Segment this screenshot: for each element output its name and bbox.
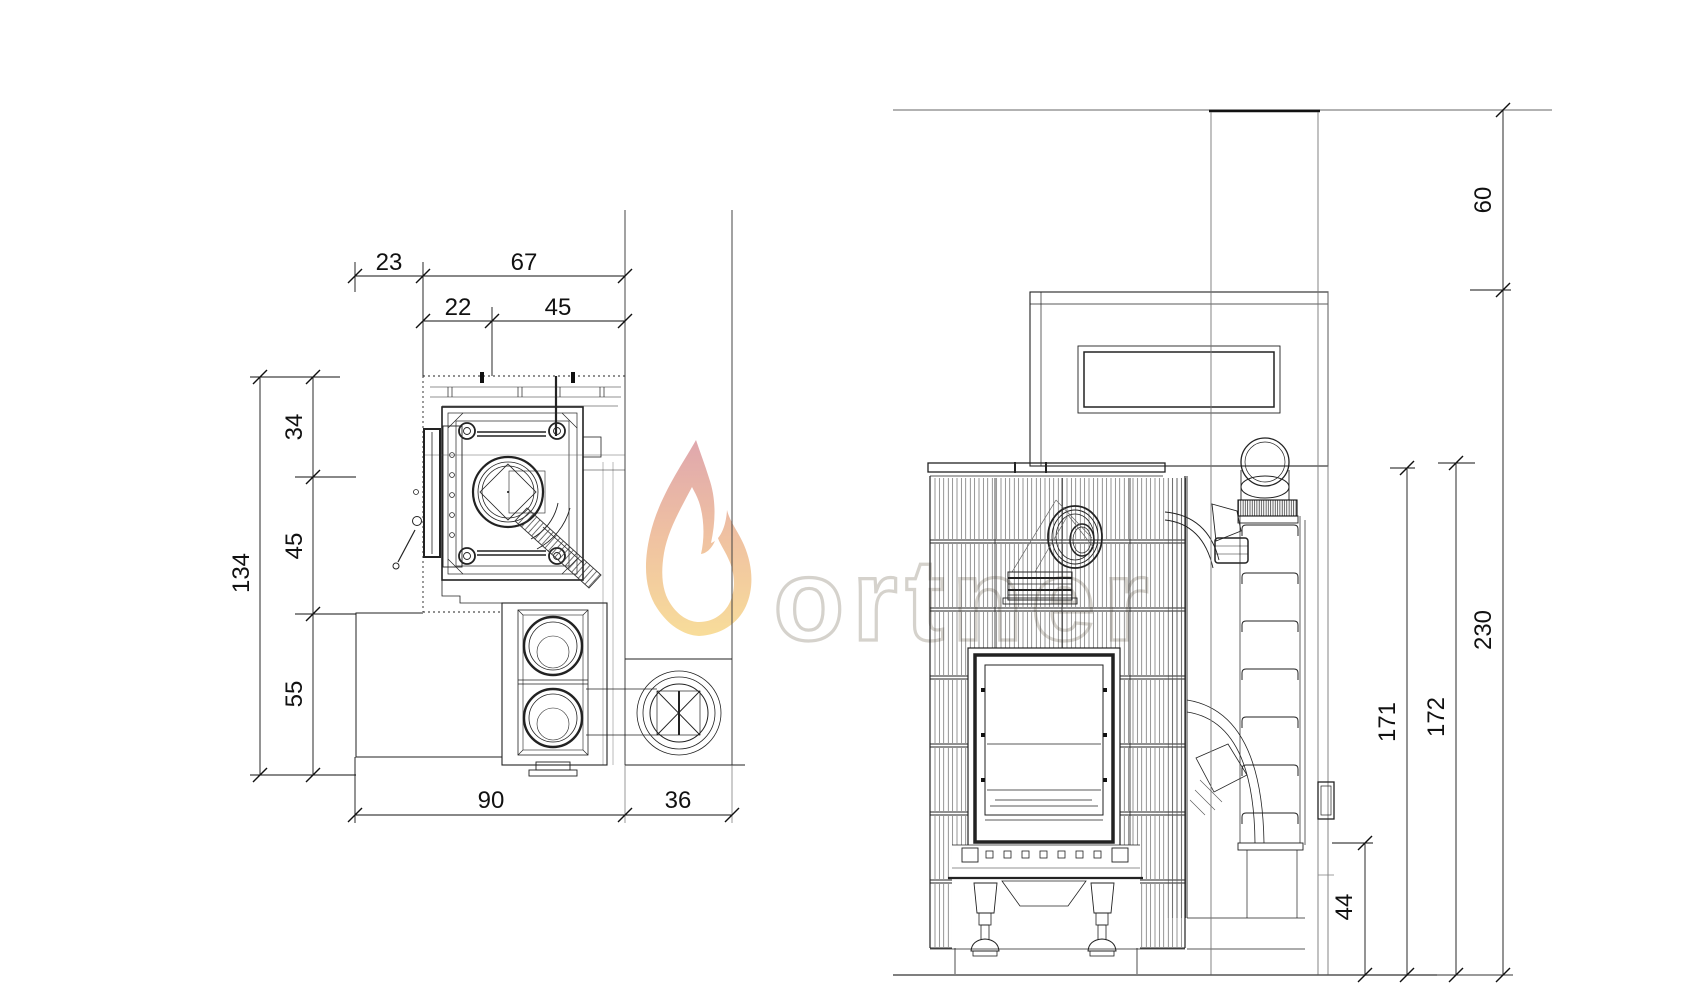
firebox-door: [968, 648, 1120, 847]
stove-top-cap: [928, 462, 1165, 476]
dim-label-45-left: 45: [281, 533, 308, 560]
bench-outline-plan: [356, 613, 502, 757]
wall-stub: [1318, 782, 1334, 875]
dim-label-36: 36: [665, 787, 692, 814]
lower-duct-box-plan: [502, 603, 607, 776]
damper-fan: [515, 503, 601, 588]
pipe-circle-bottom: [524, 689, 582, 747]
cad-drawing-canvas: ortner: [0, 0, 1695, 1000]
wall-sleeve-hatch: [1238, 500, 1297, 516]
elevation-dimensions: 60 230 172 171 44: [1331, 103, 1511, 982]
flue-duct: [1238, 438, 1297, 516]
door-glass: [985, 665, 1103, 815]
pipe-circle-top: [524, 617, 582, 675]
cleanout-port: [1215, 538, 1248, 563]
dim-label-172: 172: [1423, 697, 1450, 737]
dim-label-55: 55: [281, 681, 308, 708]
dim-label-90: 90: [478, 787, 505, 814]
door-handle-icon: [413, 517, 422, 526]
heat-accumulator: [1165, 476, 1305, 949]
dim-label-230: 230: [1470, 610, 1497, 650]
chimney-shaft: [1211, 112, 1328, 975]
dim-label-171: 171: [1374, 702, 1401, 742]
dim-label-60: 60: [1470, 187, 1497, 214]
dim-label-22: 22: [445, 294, 472, 321]
dim-label-134: 134: [228, 553, 255, 593]
dim-label-23: 23: [376, 249, 403, 276]
dim-label-45-top: 45: [545, 294, 572, 321]
door-hinge-icon: [414, 490, 419, 495]
stove-technical-drawing: ortner: [0, 0, 1695, 1000]
vent-grille: [1078, 346, 1280, 413]
chimney-flue-symbol: [586, 671, 721, 755]
dim-label-44: 44: [1331, 894, 1358, 921]
dim-label-34: 34: [281, 414, 308, 441]
stove-body-plan: [423, 407, 625, 603]
upper-housing: [1030, 292, 1328, 466]
dim-label-67: 67: [511, 249, 538, 276]
